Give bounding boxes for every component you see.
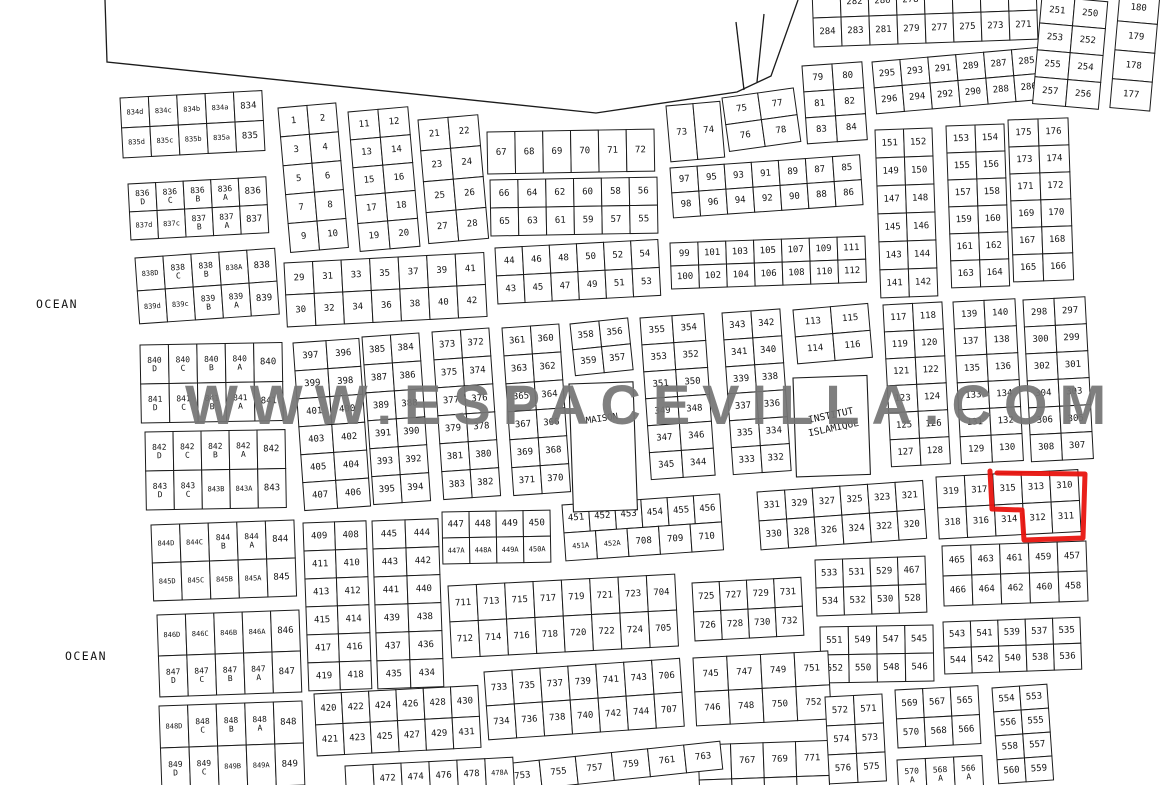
plot-label: 396 [335, 348, 352, 359]
plot-label: 415 [314, 615, 331, 626]
plot-label: 250 [1082, 8, 1099, 19]
plot-label: 751 [803, 663, 820, 674]
plot-label: 713 [483, 596, 500, 607]
plot-label: 755 [550, 766, 567, 778]
plot-label: 548 [883, 663, 899, 673]
plot-label: 417 [315, 643, 332, 654]
plot-label: 724 [627, 625, 644, 636]
plot-label: 380 [475, 449, 492, 460]
plot-label: 296 [881, 94, 898, 105]
plot-label: 463 [977, 554, 994, 565]
plot-label: 410 [343, 558, 360, 569]
plot-cell [980, 0, 1009, 12]
plot-label: 69 [551, 147, 562, 157]
plot-label: 422 [347, 702, 364, 713]
plot-label: 321 [901, 490, 918, 501]
plot-label: 418 [347, 670, 364, 681]
plot-label: 107 [787, 245, 804, 256]
plot-label: 712 [457, 634, 474, 645]
plot-label: 406 [345, 488, 362, 499]
plot-label: 531 [848, 567, 865, 578]
plot-label: 156 [983, 160, 1000, 171]
plot-label: 284 [819, 27, 836, 38]
plot-label: 746 [704, 703, 721, 714]
plot-label: 736 [521, 714, 538, 725]
plot-label: 100 [677, 272, 694, 283]
plot-label: 573 [862, 733, 879, 744]
plot-label: 834d [126, 108, 143, 117]
plot-label: 164 [986, 268, 1003, 279]
plot-label: 834b [183, 105, 200, 114]
plot-label: 715 [511, 595, 528, 606]
plot-label: 34 [352, 302, 363, 313]
plot-label: 849A [253, 761, 271, 770]
block-11-20: 11121314151617181920 [348, 107, 420, 252]
plot-label: 345 [658, 459, 675, 470]
block-836-837: 836D836C836B836A836837d837c837B837A837 [128, 177, 269, 240]
plot-label: 430 [457, 696, 474, 707]
plot-label: 318 [944, 517, 961, 528]
plot-label: 532 [849, 595, 866, 606]
plot-label: 844 [272, 534, 289, 545]
plot-label: 412 [344, 586, 361, 597]
plot-label: 835c [156, 136, 173, 145]
plot-label: 163 [957, 269, 974, 280]
plot-label: 96 [707, 197, 719, 208]
plot-label: 277 [931, 23, 948, 34]
plot-label: 838 [253, 260, 270, 271]
plot-label: 771 [804, 753, 821, 764]
plot-label: 76 [739, 130, 751, 141]
plot-label: 129 [968, 444, 985, 455]
plot-label: 428 [429, 698, 446, 709]
plot-label: 704 [653, 587, 670, 598]
plot-label: 16 [393, 172, 405, 183]
plot-label: 444 [414, 528, 431, 539]
plot-label: 464 [978, 584, 995, 595]
plot-label: 95 [706, 172, 718, 183]
plot-label: 720 [570, 628, 587, 639]
plot-label: 416 [346, 642, 363, 653]
plot-label: 539 [1004, 627, 1021, 638]
plot-label: 344 [690, 457, 707, 468]
plot-label: 53 [641, 277, 652, 288]
plot-label: 744 [633, 707, 650, 718]
plot-label: 359 [580, 355, 597, 367]
plot-label: 834c [155, 106, 172, 115]
block-141-152: 151152149150147148145146143144141142 [875, 128, 938, 298]
plot-label: 21 [428, 129, 440, 140]
plot-label: 26 [464, 188, 476, 199]
plot-label: 731 [780, 587, 797, 598]
plot-label: 381 [447, 451, 464, 462]
plot-label: 452A [604, 539, 622, 548]
plot-label: 175 [1015, 128, 1032, 139]
plot-label: 706 [658, 671, 675, 682]
plot-label: 176 [1045, 127, 1062, 138]
plot-label: 291 [934, 63, 951, 74]
plot-label: 147 [883, 194, 900, 205]
plot-label: 727 [725, 590, 742, 601]
plot-label: 298 [1031, 307, 1048, 318]
plot-label: 113 [804, 316, 821, 327]
watermark-text: WWW.ESPACEVILLA.COM [185, 373, 1118, 436]
plot-label: 393 [377, 456, 394, 467]
plot-label: 42 [466, 296, 477, 307]
plot-label: 130 [999, 442, 1016, 453]
block-73-74: 7374 [666, 101, 725, 161]
block-79-84: 798081828384 [802, 62, 867, 144]
plot-label: 844C [186, 538, 203, 547]
plot-label: 705 [655, 623, 672, 634]
plot-label: 325 [846, 494, 863, 505]
plot-label: 84 [846, 122, 858, 133]
plot-label: 465 [949, 555, 966, 566]
plot-label: 835d [128, 138, 145, 147]
plot-label: 112 [844, 266, 861, 277]
plot-label: 708 [635, 536, 652, 547]
plot-label: 252 [1079, 35, 1096, 46]
block-285-296: 295293291289287285296294292290288286 [872, 47, 1044, 113]
plot-label: 302 [1034, 361, 1051, 372]
plot-label: 57 [610, 215, 621, 225]
plot-label: 115 [842, 313, 859, 324]
plot-label: 159 [955, 215, 972, 226]
plot-label: 739 [574, 677, 591, 688]
plot-label: 745 [702, 669, 719, 680]
plot-label: 104 [733, 270, 750, 281]
plot-label: 323 [874, 492, 891, 503]
plot-label: 165 [1020, 263, 1037, 274]
block-408-419: 409408411410413412415414417416419418 [303, 521, 372, 691]
block-1-10: 12345678910 [278, 103, 348, 253]
plot-label: 308 [1038, 442, 1055, 453]
plot-label: 753 [514, 770, 531, 782]
plot-label: 157 [955, 188, 972, 199]
plot-label: 838A [225, 263, 243, 272]
plot-label: 313 [1028, 482, 1045, 493]
plot-label: 288 [992, 84, 1009, 95]
plot-cell [732, 778, 766, 785]
plot-label: 299 [1063, 333, 1080, 344]
plot-label: 721 [596, 590, 613, 601]
plot-label: 759 [622, 759, 639, 771]
plot-label: 845C [187, 576, 204, 585]
plot-label: 837 [246, 214, 263, 225]
plot-label: 845A [244, 574, 262, 583]
plot-label: 842 [263, 444, 279, 454]
plot-label: 22 [458, 126, 470, 137]
plot-label: 150 [911, 165, 928, 176]
plot-label: 448A [475, 546, 493, 554]
plot-label: 576 [835, 763, 852, 774]
plot-label: 257 [1042, 86, 1059, 97]
plot-label: 128 [927, 446, 944, 457]
plot-label: 85 [841, 163, 853, 174]
plot-label: 103 [732, 247, 749, 258]
plot-label: 11 [358, 119, 370, 130]
plot-label: 714 [485, 632, 502, 643]
plot-label: 138 [993, 335, 1010, 346]
plot-label: 46 [531, 255, 542, 266]
plot-label: 119 [891, 339, 908, 350]
block-271-284: 282280278284283281279277275273271 [812, 0, 1038, 47]
block-704-724: 7117137157177197217237047127147167187207… [448, 574, 678, 658]
plot-label: 454 [646, 507, 663, 518]
plot-label: 763 [695, 751, 712, 763]
plot-label: 169 [1018, 209, 1035, 220]
plot-label: 168 [1049, 235, 1066, 246]
plot-label: 71 [607, 146, 618, 156]
plot-label: 565 [956, 695, 973, 706]
plot-label: 280 [874, 0, 891, 6]
plot-label: 722 [598, 626, 615, 637]
plot-label: 437 [385, 641, 402, 652]
plot-label: 72 [635, 145, 646, 155]
plot-label: 106 [760, 269, 777, 280]
plot-label: 319 [943, 486, 960, 497]
plot-label: 450 [528, 518, 544, 528]
plot-label: 748 [738, 701, 755, 712]
plot-label: 547 [883, 635, 899, 645]
plot-label: 549 [854, 635, 870, 645]
plot-label: 421 [322, 734, 339, 745]
block-566A-570A: 570A568A566A [897, 756, 984, 785]
plot-label: 846 [277, 626, 294, 637]
plot-label: 438 [417, 612, 434, 623]
plot-label: 3 [293, 145, 299, 155]
plot-label: 761 [658, 755, 675, 767]
block-838-839: 838D838C838B838A838839d839c839B839A839 [135, 248, 279, 324]
plot-label: 19 [368, 231, 380, 242]
plot-label: 324 [848, 523, 865, 534]
plot-label: 151 [881, 138, 898, 149]
plot-label: 105 [760, 246, 777, 257]
block-565-570: 569567565570568566 [895, 686, 981, 748]
plot-label: 271 [1015, 20, 1032, 31]
plot-label: 14 [391, 144, 403, 155]
plot-label: 37 [408, 267, 419, 278]
block-250-257: 251250253252255254257256 [1033, 0, 1108, 109]
plot-label: 545 [911, 634, 927, 644]
plot-label: 49 [586, 280, 597, 291]
plot-label: 5 [296, 174, 302, 184]
plot-label: 312 [1029, 513, 1046, 524]
plot-label: 120 [921, 338, 938, 349]
plot-label: 146 [913, 221, 930, 232]
plot-label: 834a [211, 103, 228, 112]
plot-label: 707 [661, 705, 678, 716]
block-706-744: 7337357377397417437067347367387407427447… [484, 658, 684, 740]
plot-label: 362 [539, 361, 556, 372]
plot-label: 173 [1016, 155, 1033, 166]
plot-label: 73 [676, 127, 688, 138]
block-99-112: 9910110310510710911110010210410610811011… [670, 236, 866, 289]
plot-label: 315 [999, 483, 1016, 494]
plot-label: 342 [758, 318, 775, 329]
plot-label: 441 [383, 585, 400, 596]
plot-label: 98 [680, 199, 692, 210]
plot-label: 28 [466, 219, 478, 230]
plot-label: 757 [586, 763, 603, 775]
plot-label: 118 [920, 311, 937, 322]
plot-label: 251 [1049, 5, 1066, 16]
plot-label: 530 [877, 594, 894, 605]
plot-label: 79 [812, 73, 824, 84]
plot-label: 447A [448, 547, 466, 555]
plot-label: 445 [381, 529, 398, 540]
plot-label: 300 [1032, 334, 1049, 345]
plot-label: 60 [582, 187, 593, 197]
plot-label: 411 [312, 559, 329, 570]
plot-label: 322 [876, 521, 893, 532]
plot-label: 91 [760, 168, 772, 179]
plot-label: 66 [499, 189, 510, 199]
plot-label: 92 [762, 193, 774, 204]
plot-label: 153 [953, 134, 970, 145]
plot-label: 9 [301, 232, 307, 242]
plot-label: 111 [843, 243, 860, 254]
plot-label: 740 [577, 710, 594, 721]
plot-label: 80 [842, 70, 854, 81]
plot-label: 50 [585, 252, 596, 263]
plot-label: 546 [911, 662, 927, 672]
block-434-445: 445444443442441440439438437436435434 [372, 519, 444, 689]
plot-label: 81 [814, 98, 826, 109]
plot-label: 290 [964, 87, 981, 98]
plot-label: 12 [388, 117, 400, 128]
plot-label: 447 [448, 520, 464, 530]
plot-label: 457 [1064, 551, 1081, 562]
plot-label: 741 [602, 675, 619, 686]
plot-label: 474 [407, 772, 424, 783]
plot-label: 431 [458, 727, 475, 738]
plot-label: 848 [280, 717, 297, 728]
plot-label: 292 [937, 89, 954, 100]
plot-cell [764, 777, 798, 785]
plot-label: 253 [1046, 32, 1063, 43]
plot-label: 743 [630, 673, 647, 684]
plot-label: 409 [311, 531, 328, 542]
plot-label: 8 [327, 200, 333, 210]
plot-label: 331 [763, 500, 780, 511]
plot-label: 294 [909, 92, 926, 103]
plot-label: 843A [236, 485, 254, 493]
plot-label: 43 [505, 284, 516, 295]
plot-label: 32 [324, 303, 335, 314]
plot-label: 555 [1027, 715, 1044, 726]
plot-label: 293 [906, 66, 923, 77]
block-113-116: 113115114116 [793, 303, 872, 363]
block-165-176: 175176173174171172169170167168165166 [1008, 118, 1074, 282]
plot-label: 551 [826, 636, 842, 646]
plot-label: 408 [342, 530, 359, 541]
plot-label: 429 [431, 729, 448, 740]
plot-label: 370 [547, 473, 564, 484]
plot-label: 834 [240, 101, 257, 112]
plot-label: 88 [816, 190, 828, 201]
plot-label: 77 [771, 98, 783, 109]
plot-label: 333 [738, 455, 755, 466]
plot-label: 255 [1044, 59, 1061, 70]
plot-label: 25 [434, 190, 446, 201]
plot-label: 301 [1065, 360, 1082, 371]
plot-label: 75 [736, 103, 748, 114]
plot-label: 392 [405, 454, 422, 465]
plot-label: 116 [844, 340, 861, 351]
plot-label: 472 [379, 773, 396, 784]
plot-label: 7 [298, 203, 304, 213]
plot-label: 383 [448, 479, 465, 490]
plot-label: 423 [349, 733, 366, 744]
plot-label: 61 [555, 216, 566, 226]
plot-label: 353 [650, 352, 667, 363]
plot-label: 723 [625, 589, 642, 600]
plot-label: 44 [504, 256, 515, 267]
plot-label: 404 [343, 460, 360, 471]
plot-label: 846C [192, 630, 209, 639]
plot-label: 114 [807, 343, 824, 354]
plot-label: 360 [537, 333, 554, 344]
block-21-28: 2122232425262728 [418, 115, 489, 244]
plot-label: 425 [376, 731, 393, 742]
plot-label: 572 [832, 705, 849, 716]
plot-label: 36 [381, 300, 392, 311]
plot-label: 139 [961, 309, 978, 320]
plot-label: 136 [995, 362, 1012, 373]
plot-label: 332 [767, 453, 784, 464]
plot-label: 15 [363, 175, 375, 186]
block-420-431: 420422424426428430421423425427429431 [314, 685, 481, 755]
plot-label: 108 [788, 268, 805, 279]
plot-label: 443 [382, 557, 399, 568]
plot-label: 62 [554, 188, 565, 198]
plot-label: 40 [438, 297, 449, 308]
plot-label: 554 [998, 693, 1015, 704]
plot-label: 709 [667, 534, 684, 545]
plot-label: 162 [985, 241, 1002, 252]
boundary-line [757, 14, 764, 82]
plot-label: 449 [501, 519, 517, 529]
plot-label: 738 [549, 712, 566, 723]
plot-label: 17 [366, 203, 378, 214]
plot-label: 570 [903, 727, 920, 738]
plot-label: 172 [1047, 181, 1064, 192]
plot-label: 109 [815, 244, 832, 255]
plot-label: 149 [882, 166, 899, 177]
plot-label: 767 [739, 756, 756, 767]
plot-label: 440 [416, 584, 433, 595]
plot-label: 70 [579, 146, 590, 156]
plot-label: 47 [559, 281, 570, 292]
plot-label: 397 [302, 350, 319, 361]
plot-label: 711 [455, 598, 472, 609]
plot-label: 64 [526, 188, 537, 198]
plot-label: 289 [962, 61, 979, 72]
plot-label: 2 [319, 113, 325, 123]
plot-label: 352 [682, 349, 699, 360]
plot-label: 843 [264, 483, 280, 493]
plot-label: 716 [513, 631, 530, 642]
plot-label: 90 [789, 192, 801, 203]
plot-label: 835 [242, 131, 259, 142]
plot-label: 326 [821, 525, 838, 536]
plot-label: 179 [1128, 31, 1145, 42]
plot-label: 732 [781, 616, 798, 627]
plot-label: 476 [435, 770, 452, 781]
block-535-544: 543541539537535544542540538536 [943, 617, 1082, 674]
plot-label: 256 [1075, 89, 1092, 100]
